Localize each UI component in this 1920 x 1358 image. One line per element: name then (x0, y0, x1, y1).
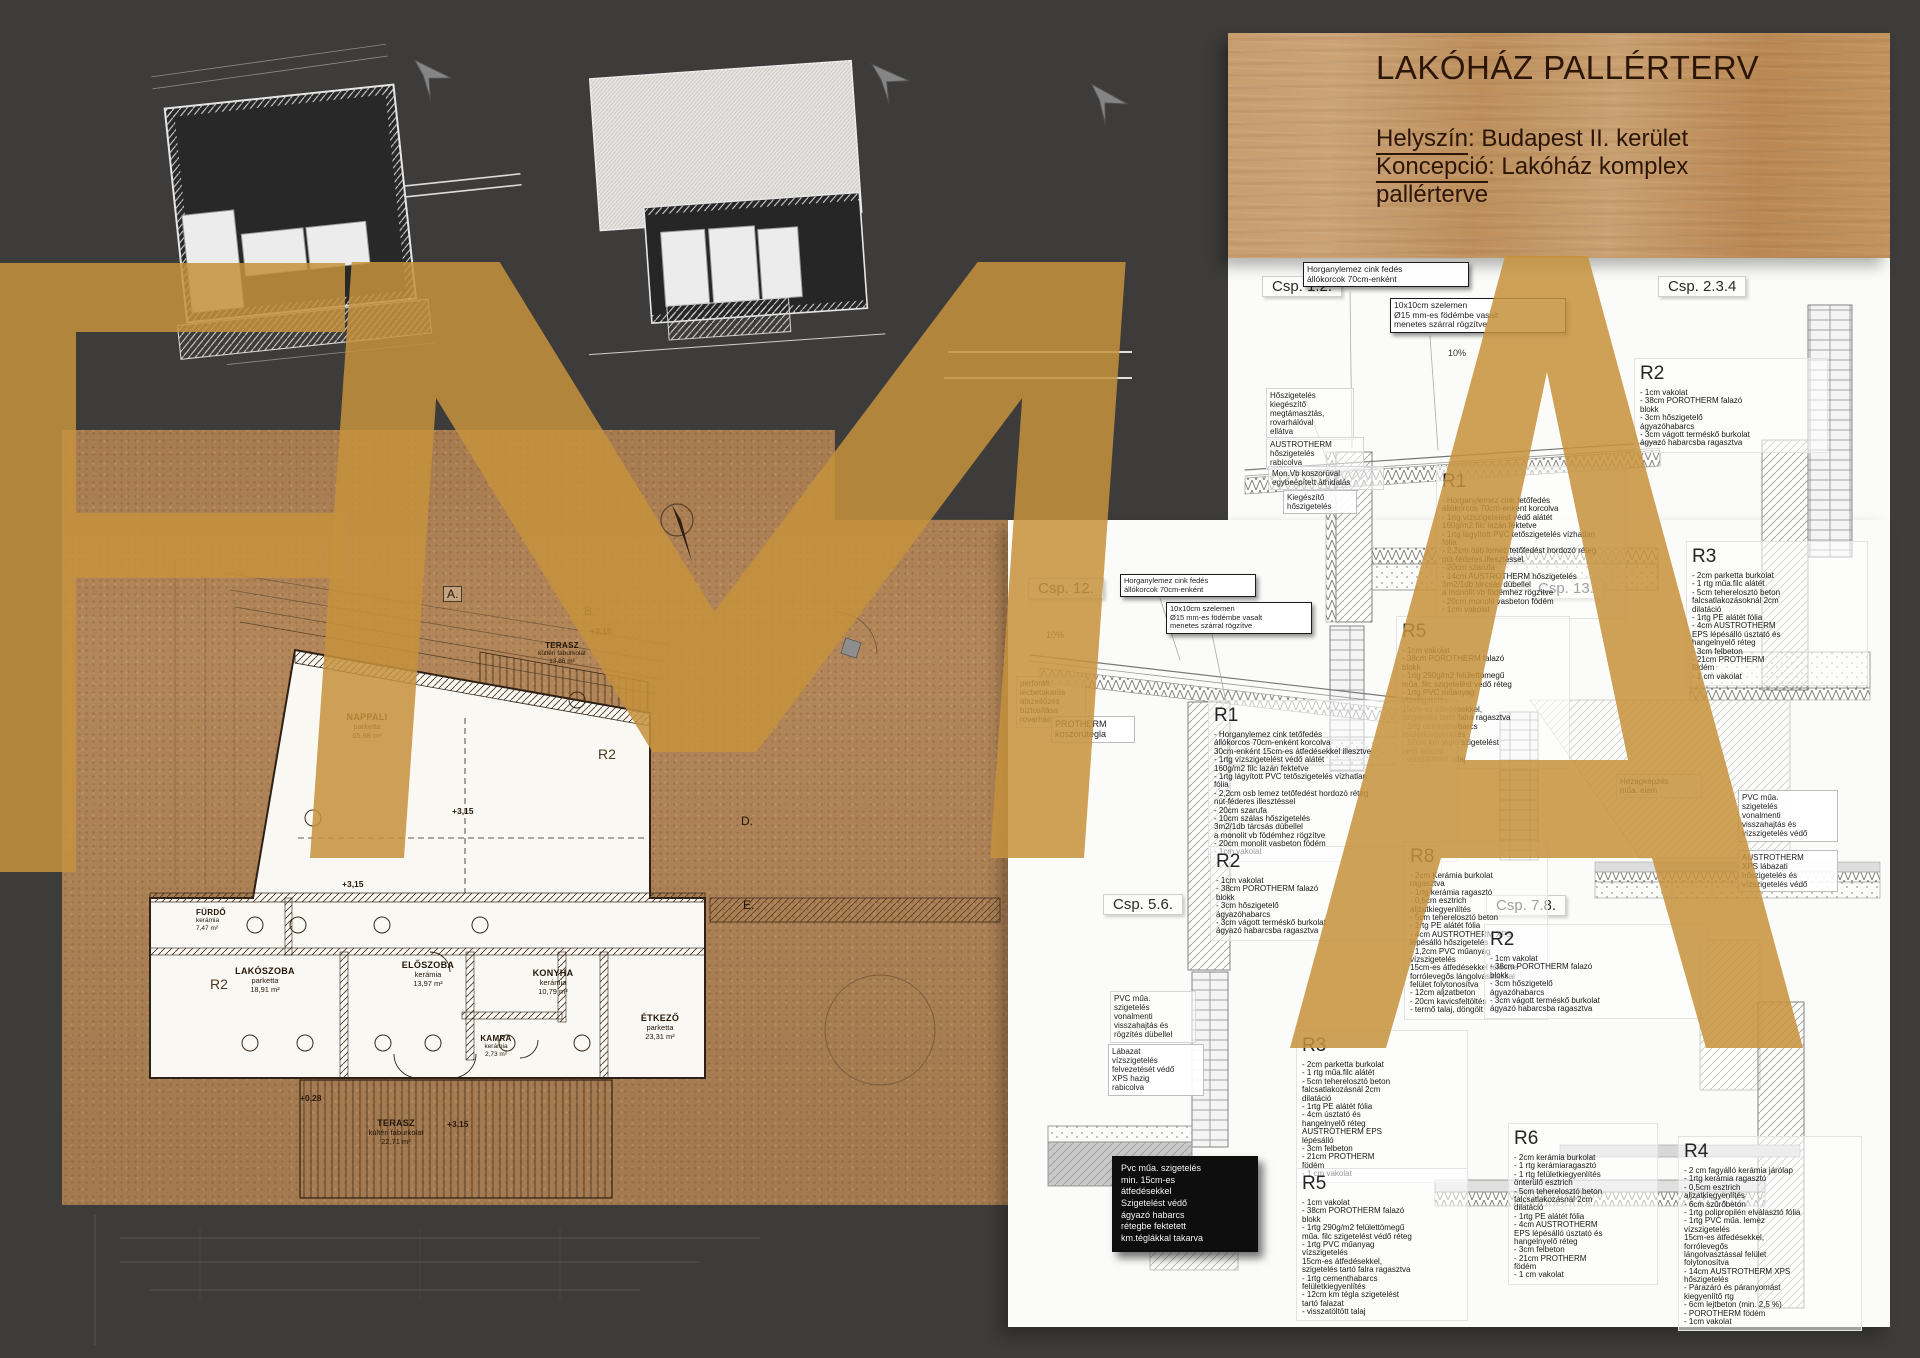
layer-block-r3b: R3 - 2cm parketta burkolat - 1 rtg műa.f… (1296, 1030, 1468, 1183)
section-label-csp12b: Csp. 12. (1028, 578, 1104, 599)
layer-lines: - Horganylemez cink tetőfedés állókorcos… (1214, 731, 1452, 857)
room-label-nappali: NAPPALI parketta 65,88 m² (312, 712, 422, 740)
section-label-csp234: Csp. 2.3.4 (1658, 276, 1746, 297)
room-label-terasz-also: TERASZ kültéri faburkolat 22,71 m² (341, 1118, 451, 1146)
layer-lines: - 2cm parketta burkolat - 1 rtg műa.filc… (1302, 1061, 1462, 1178)
layer-id: R1 (1442, 471, 1620, 493)
slope-label: 10% (1448, 348, 1466, 358)
layer-block-r3a: R3 - 2cm parketta burkolat - 1 rtg műa.f… (1686, 541, 1868, 686)
layer-id: R2 (1640, 363, 1822, 385)
layer-lines: - 1cm vakolat - 38cm POROTHERM falazó bl… (1302, 1199, 1462, 1316)
layer-block-r4: R4 - 2 cm fagyálló kerámia járólap - 1rt… (1678, 1136, 1862, 1331)
room-label-kamra: KAMRA kerámia 2,73 m² (441, 1034, 551, 1059)
level-mark: +3,15 (452, 806, 474, 816)
grid-mark-b: B. (580, 603, 599, 619)
level-mark: +3,15 (342, 879, 364, 889)
layer-lines: - 1cm vakolat - 38cm POROTHERM falazó bl… (1216, 877, 1436, 936)
level-mark: +3,15 (590, 626, 612, 636)
callout-szelemen-a: 10x10cm szelemen Ø15 mm-es födémbe vasal… (1390, 298, 1566, 333)
layer-id: R6 (1514, 1128, 1652, 1150)
callout-pvc-black: Pvc műa. szigetelés min. 15cm-es átfedés… (1112, 1156, 1258, 1252)
callout-kiegeszito: Kiegészítő hőszigetelés (1283, 490, 1357, 514)
room-label-eloszoba: ELŐSZOBA kerámia 13,97 m² (373, 960, 483, 988)
presentation-board: LAKÓHÁZ PALLÉRTERV Helyszín: Budapest II… (0, 0, 1920, 1358)
callout-monvb: Mon.Vb koszorúval egybeépített áthidalás (1268, 466, 1384, 490)
layer-lines: - 2 cm fagyálló kerámia járólap - 1rtg k… (1684, 1167, 1856, 1326)
room-label-furdo: FÜRDŐ kerámia 7,47 m² (196, 908, 266, 933)
plan-r-mark: R2 (598, 746, 616, 762)
layer-id: R1 (1214, 705, 1452, 727)
grid-mark-a: A. (443, 586, 462, 602)
room-label-konyha: KONYHA kerámia 10,79 m² (498, 968, 608, 996)
layer-id: R4 (1684, 1141, 1856, 1163)
room-label-terasz-felso: TERASZ kültéri faburkolat 13,86 m² (507, 641, 617, 666)
layer-block-r2c: R2 - 1cm vakolat - 38cm POROTHERM falazó… (1484, 924, 1708, 1019)
callout-protherm: PROTHERM koszorútégla (1051, 716, 1135, 743)
layer-block-r2a: R2 - 1cm vakolat - 38cm POROTHERM falazó… (1634, 358, 1828, 453)
callout-labazat: Lábazat vízszigetelés felvezetését védő … (1108, 1044, 1204, 1096)
grid-mark-e: E. (739, 897, 758, 913)
layer-id: R3 (1302, 1035, 1462, 1057)
grid-mark-d: D. (737, 813, 757, 829)
layer-block-r5b: R5 - 1cm vakolat - 38cm POROTHERM falazó… (1296, 1168, 1468, 1321)
callout-horganylemez-a: Horganylemez cink fedés állókorcok 70cm-… (1303, 262, 1469, 287)
callout-szelemen-b: 10x10cm szelemen Ø15 mm-es födémbe vasal… (1166, 602, 1312, 634)
slope-label: 10% (1046, 630, 1064, 640)
layer-block-r1b: R1 - Horganylemez cink tetőfedés állókor… (1208, 700, 1458, 862)
layer-id: R5 (1302, 1173, 1462, 1195)
layer-lines: - 1cm vakolat - 38cm POROTHERM falazó bl… (1490, 955, 1702, 1014)
callout-xps-right: AUSTROTHERM XPS lábazati hőszigetelés és… (1738, 850, 1838, 892)
level-mark: +0,28 (300, 1093, 322, 1103)
section-label-csp56: Csp. 5.6. (1103, 894, 1183, 915)
layer-id: R2 (1216, 851, 1436, 873)
layer-id: R5 (1402, 621, 1564, 643)
layer-block-r1a: R1 - Horganylemez cink tetőfedés állókor… (1436, 466, 1626, 619)
callout-pvc-right: PVC műa. szigetelés vonalmenti visszahaj… (1738, 790, 1838, 842)
plan-r-mark: R2 (210, 976, 228, 992)
layer-id: R2 (1490, 929, 1702, 951)
layer-lines: - 2cm kerámia burkolat - 1 rtg kerámiara… (1514, 1154, 1652, 1280)
room-label-etkezo: ÉTKEZŐ parketta 23,31 m² (605, 1013, 715, 1041)
layer-lines: - 1cm vakolat - 38cm POROTHERM falazó bl… (1640, 389, 1822, 448)
callout-horganylemez-b: Horganylemez cink fedés állókorcok 70cm-… (1120, 574, 1256, 597)
layer-block-r6: R6 - 2cm kerámia burkolat - 1 rtg kerámi… (1508, 1123, 1658, 1285)
callout-pvc-vonalmenti: PVC műa. szigetelés vonalmenti visszahaj… (1110, 991, 1196, 1043)
callout-hoszigeteles: Hőszigetelés kiegészítő megtámasztás, ro… (1266, 388, 1354, 440)
labels-layer: Csp. 1.2. Csp. 2.3.4 Csp. 12. Csp. 13. C… (0, 0, 1920, 1358)
layer-lines: - 2cm parketta burkolat - 1 rtg műa.filc… (1692, 572, 1862, 681)
callout-hezag: Hézagképzés műa. elem (1616, 774, 1702, 798)
layer-id: R8 (1410, 846, 1542, 868)
layer-id: R3 (1692, 546, 1862, 568)
layer-lines: - Horganylemez cink tetőfedés állókorcos… (1442, 497, 1620, 614)
level-mark: +3,15 (447, 1119, 469, 1129)
